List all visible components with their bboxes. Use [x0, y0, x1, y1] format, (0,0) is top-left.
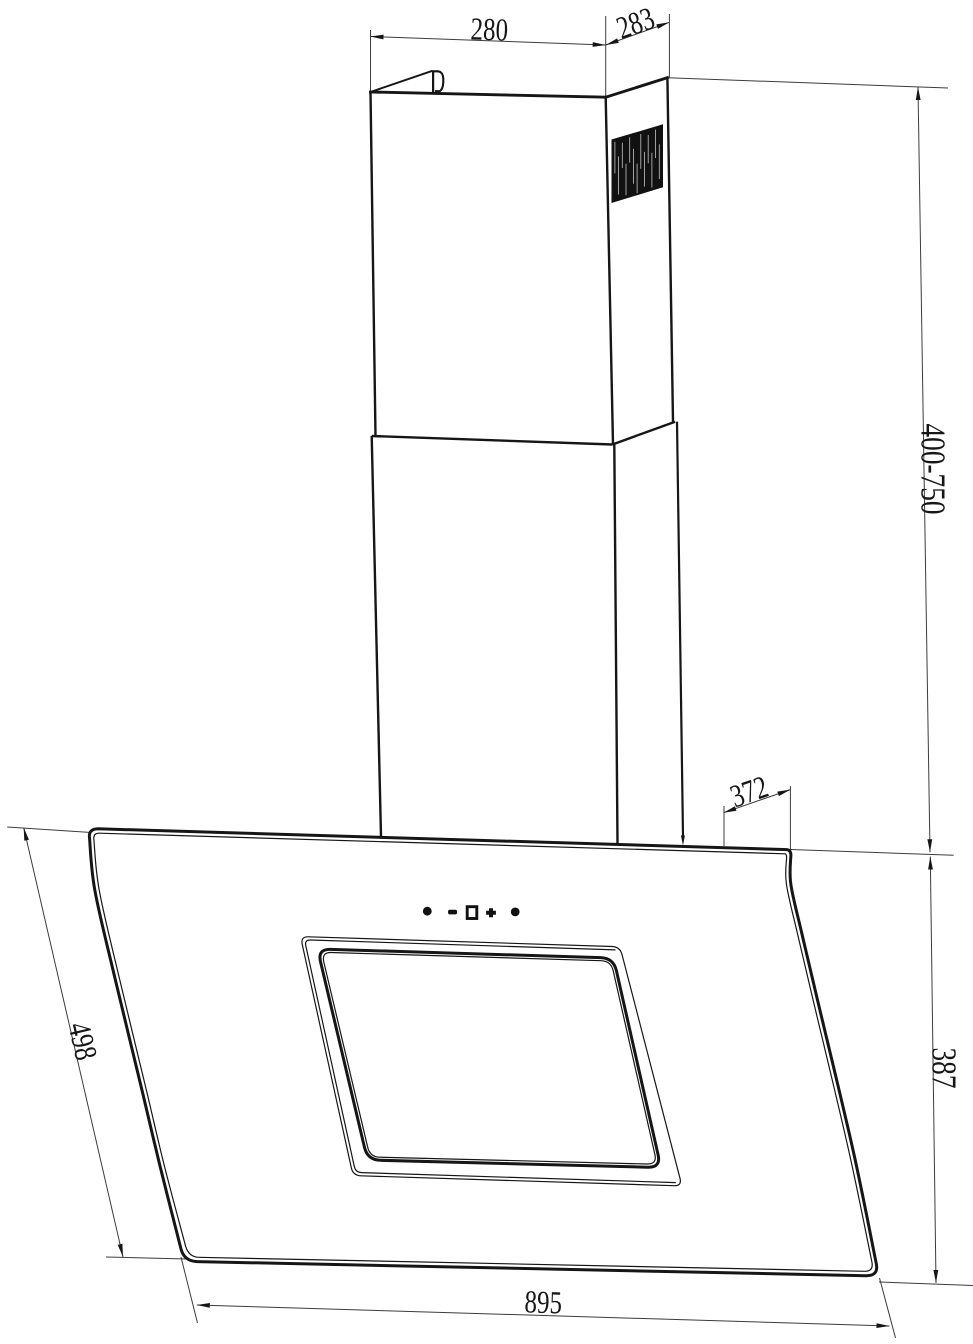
svg-text:895: 895 — [524, 1284, 563, 1321]
svg-text:387: 387 — [925, 1048, 964, 1089]
svg-text:400-750: 400-750 — [914, 424, 953, 515]
svg-text:280: 280 — [470, 11, 509, 48]
